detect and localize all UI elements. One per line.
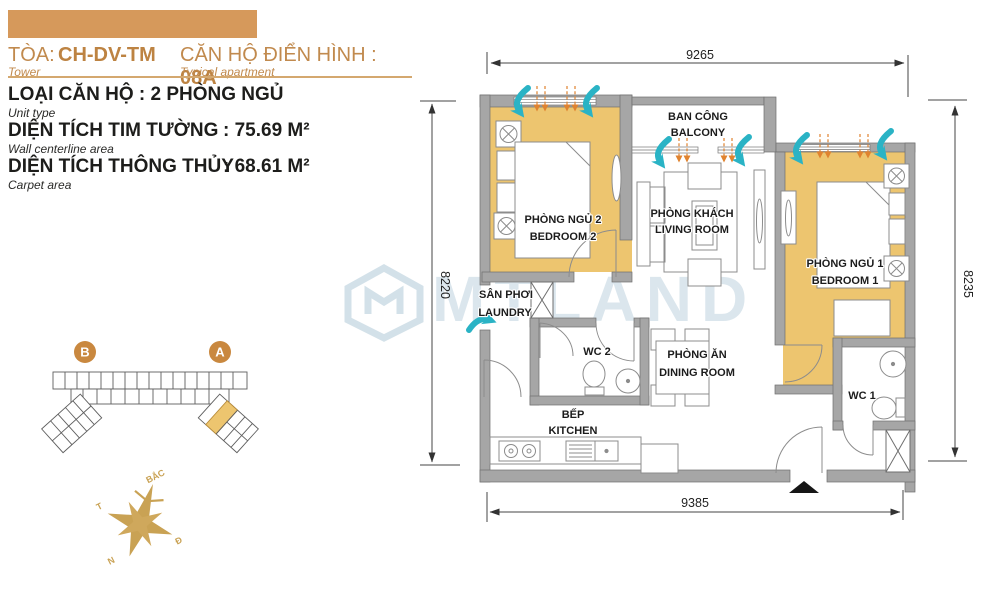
header-divider [8,76,412,78]
floorplan-page: MTLAND TÒA: CH-DV-TM Tower CĂN HỘ ĐIỂN H… [0,0,1000,600]
compass-star: BẮC T Đ N [85,458,195,586]
label-balcony-vi: BAN CÔNG [668,110,728,123]
wall-area-sub: Wall centerline area [8,142,114,156]
wall-area-value: : 75.69 M² [223,120,310,141]
label-bedroom2-en: BEDROOM 2 [530,231,597,243]
wall-area-label: DIỆN TÍCH TIM TƯỜNG [8,120,223,142]
watermark-logo [338,262,430,342]
label-living-vi: PHÒNG KHÁCH [650,207,733,220]
compass-south-label: N [106,555,116,567]
label-wc2: WC 2 [583,346,611,358]
apartment-label: CĂN HỘ ĐIỂN HÌNH : [180,44,377,66]
label-dining-en: DINING ROOM [659,367,735,379]
building-footprint [42,372,259,453]
label-dining-vi: PHÒNG ĂN [667,348,726,361]
tower-label: TÒA: [8,44,55,67]
kitchen-furniture [490,437,678,473]
entrance-marker-icon [789,481,819,493]
wc2-fixtures [583,361,640,395]
label-living-en: LIVING ROOM [655,224,729,236]
carpet-area-line: DIỆN TÍCH THÔNG THỦY: 68.61 M² [8,156,310,178]
tower-b-letter: B [80,345,89,360]
header-row: TÒA: CH-DV-TM Tower CĂN HỘ ĐIỂN HÌNH : 0… [8,44,418,78]
wall-area-line: DIỆN TÍCH TIM TƯỜNG: 75.69 M² [8,120,310,142]
label-kitchen-en: KITCHEN [549,425,598,437]
compass-west-label: T [95,501,105,513]
label-bedroom1-en: BEDROOM 1 [812,275,879,287]
label-balcony-en: BALCONY [671,127,726,139]
wc1-fixtures [872,351,906,419]
label-kitchen-vi: BẾP [562,408,585,421]
floor-plan: 9265 8220 8235 9385 BAN CÔNG BALCONY PHÒ… [420,40,1000,560]
carpet-area-value: : 68.61 M² [223,156,310,177]
tower-a-letter: A [215,345,225,360]
label-laundry-en: LAUNDRY [478,307,532,319]
compass-rose: BẮC T Đ N [85,458,195,598]
unit-type-line: LOẠI CĂN HỘ : 2 PHÒNG NGỦ [8,84,284,106]
dim-top: 9265 [686,48,714,62]
label-bedroom2-vi: PHÒNG NGỦ 2 [524,213,601,226]
dim-bottom: 9385 [681,496,709,510]
unit-type-sub: Unit type [8,106,55,120]
site-map: B A [25,328,275,463]
compass-north-label: BẮC [144,467,166,485]
dim-right: 8235 [961,270,975,298]
label-bedroom1-vi: PHÒNG NGỦ 1 [806,257,883,270]
header-accent-bar [8,10,257,38]
label-laundry-vi: SÂN PHƠI [479,288,533,301]
tower-badges: B A [74,341,231,363]
label-wc1: WC 1 [848,390,876,402]
carpet-area-sub: Carpet area [8,178,71,192]
dim-left: 8220 [438,271,452,299]
carpet-area-label: DIỆN TÍCH THÔNG THỦY [8,156,223,178]
compass-east-label: Đ [173,534,184,546]
tower-value: CH-DV-TM [58,44,156,67]
